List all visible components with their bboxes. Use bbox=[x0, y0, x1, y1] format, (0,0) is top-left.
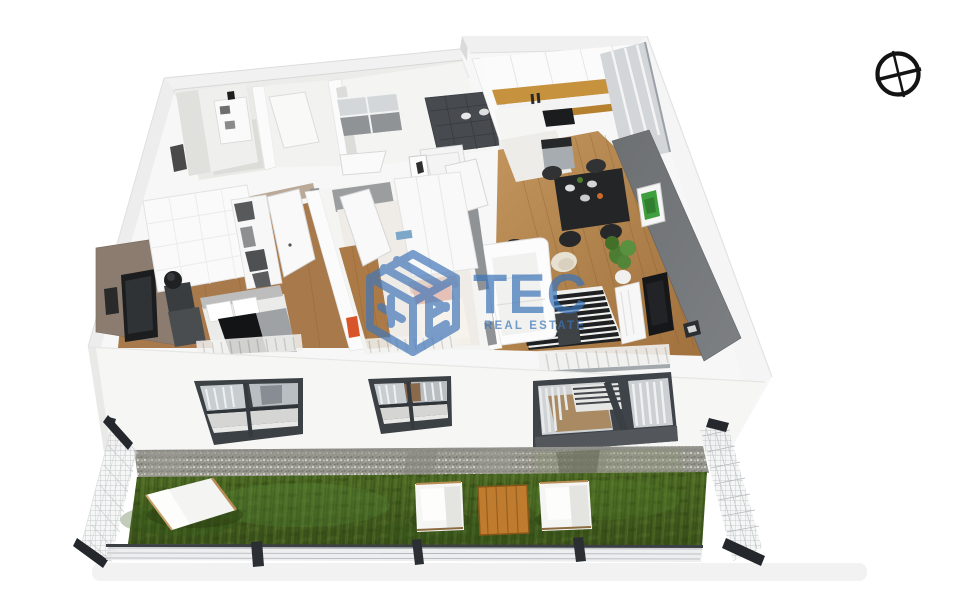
svg-text:TEC: TEC bbox=[473, 262, 588, 325]
svg-text:REAL ESTATE: REAL ESTATE bbox=[484, 320, 586, 332]
